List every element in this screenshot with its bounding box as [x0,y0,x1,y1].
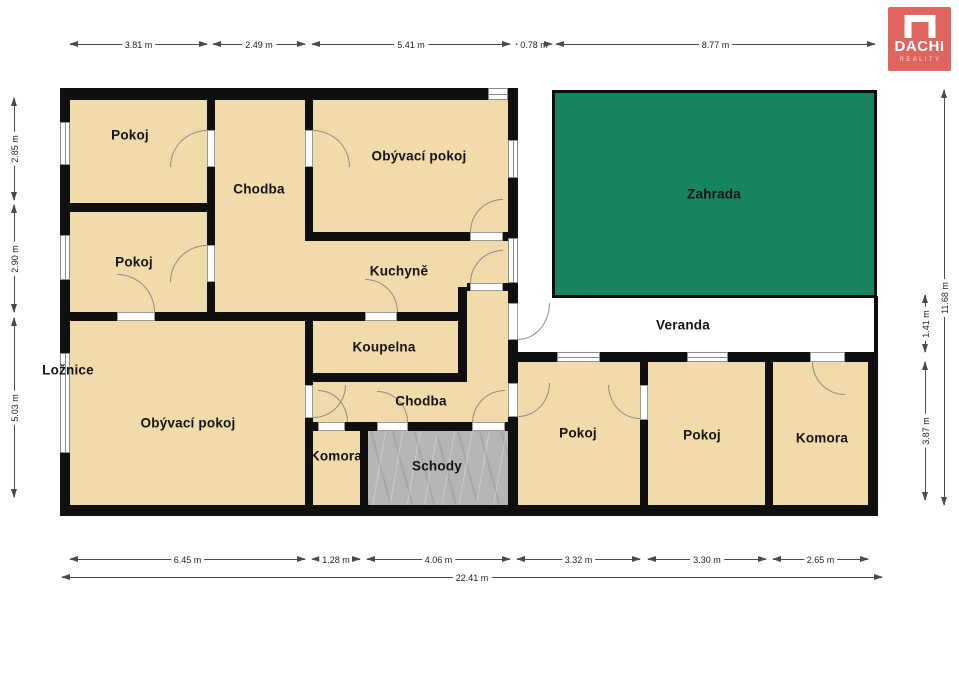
dimension-label: 5.03 m [10,391,20,425]
wall [640,362,648,505]
dimension-label: 11.68 m [940,279,950,317]
room-label-obyvaci-pokoj-top: Obývací pokoj [372,149,467,164]
dimension-label: 2.90 m [10,242,20,276]
door [207,245,215,282]
dimension-label: 8.77 m [699,40,733,50]
dimension-label: 5.41 m [394,40,428,50]
dimension-label: 2.49 m [242,40,276,50]
dimension-bottom-5: 3.30 m [648,559,766,560]
dimension-bottom-6: 2.65 m [773,559,868,560]
floor-plan-canvas: Pokoj Chodba Obývací pokoj Pokoj Kuchyně… [0,0,959,678]
dimension-label: 2.85 m [10,132,20,166]
door [640,385,648,420]
door [508,383,518,417]
window [557,352,600,362]
dimension-label: 4.06 m [422,555,456,565]
dimension-label: 3.32 m [562,555,596,565]
room-label-pokoj-top-left: Pokoj [111,128,149,143]
dachi-reality-logo: DACHI REALITY [888,7,951,71]
door [472,422,505,431]
room-label-zahrada: Zahrada [687,187,741,202]
dimension-right-inner-1: 1.41 m [925,295,926,352]
window [60,122,70,165]
dimension-top-1: 3.81 m [70,44,207,45]
dimension-top-5: 8.77 m [556,44,875,45]
door [470,283,503,291]
room-label-veranda: Veranda [656,318,710,333]
dimension-left-1: 2.85 m [14,98,15,200]
window [488,88,508,100]
window [687,352,728,362]
window [508,140,518,178]
dimension-label: 6.45 m [171,555,205,565]
dimension-bottom-2: 1.28 m [312,559,360,560]
room-label-koupelna: Koupelna [352,340,415,355]
dimension-label: 1.41 m [921,307,931,341]
door-swing-arc [518,303,550,340]
room-label-pokoj-mid-left: Pokoj [115,255,153,270]
dimension-label: 3.30 m [690,555,724,565]
dimension-top-4: 0.78 m [516,44,552,45]
door [470,232,503,241]
dimension-right-outer: 11.68 m [944,90,945,505]
room-label-kuchyne: Kuchyně [370,264,428,279]
dimension-top-3: 5.41 m [312,44,510,45]
wall [765,362,773,505]
door [810,352,845,362]
dimension-left-2: 2.90 m [14,205,15,312]
door [117,312,155,321]
wall [360,430,368,505]
wall [60,505,878,516]
logo-arch-icon [904,15,935,38]
dimension-top-2: 2.49 m [213,44,305,45]
room-label-schody: Schody [412,459,462,474]
room-label-chodba-top: Chodba [233,182,284,197]
room-label-chodba-lower: Chodba [395,394,446,409]
window [60,235,70,280]
veranda-right-border [874,296,878,354]
dimension-label: 22.41 m [453,573,492,583]
dimension-label: 1.28 m [319,555,353,565]
dimension-left-3: 5.03 m [14,318,15,497]
door [508,303,518,340]
wall [305,100,313,241]
door [318,422,345,431]
dimension-label: 0.78 m [517,40,551,50]
dimension-bottom-4: 3.32 m [517,559,640,560]
wall [868,352,878,516]
room-label-pokoj-wing-1: Pokoj [559,426,597,441]
dimension-bottom-total: 22.41 m [62,577,882,578]
dimension-bottom-1: 6.45 m [70,559,305,560]
dimension-right-inner-2: 3.87 m [925,362,926,500]
dimension-label: 2.65 m [804,555,838,565]
room-label-obyvaci-pokoj-main: Obývací pokoj [141,416,236,431]
dimension-bottom-3: 4.06 m [367,559,510,560]
room-label-pokoj-wing-2: Pokoj [683,428,721,443]
door [305,130,313,167]
door [207,130,215,167]
door [305,385,313,418]
logo-subtitle: REALITY [888,57,951,63]
room-label-loznice: Ložnice [42,363,94,378]
wall [313,373,467,382]
wall [458,287,467,382]
dimension-label: 3.81 m [122,40,156,50]
room-label-komora-inner: Komora [310,449,362,464]
door [377,422,408,431]
door [365,312,397,321]
dimension-label: 3.87 m [921,414,931,448]
logo-title: DACHI [888,38,951,55]
wall [60,88,518,100]
window [508,238,518,283]
room-label-komora-wing: Komora [796,431,848,446]
wall [60,203,215,212]
